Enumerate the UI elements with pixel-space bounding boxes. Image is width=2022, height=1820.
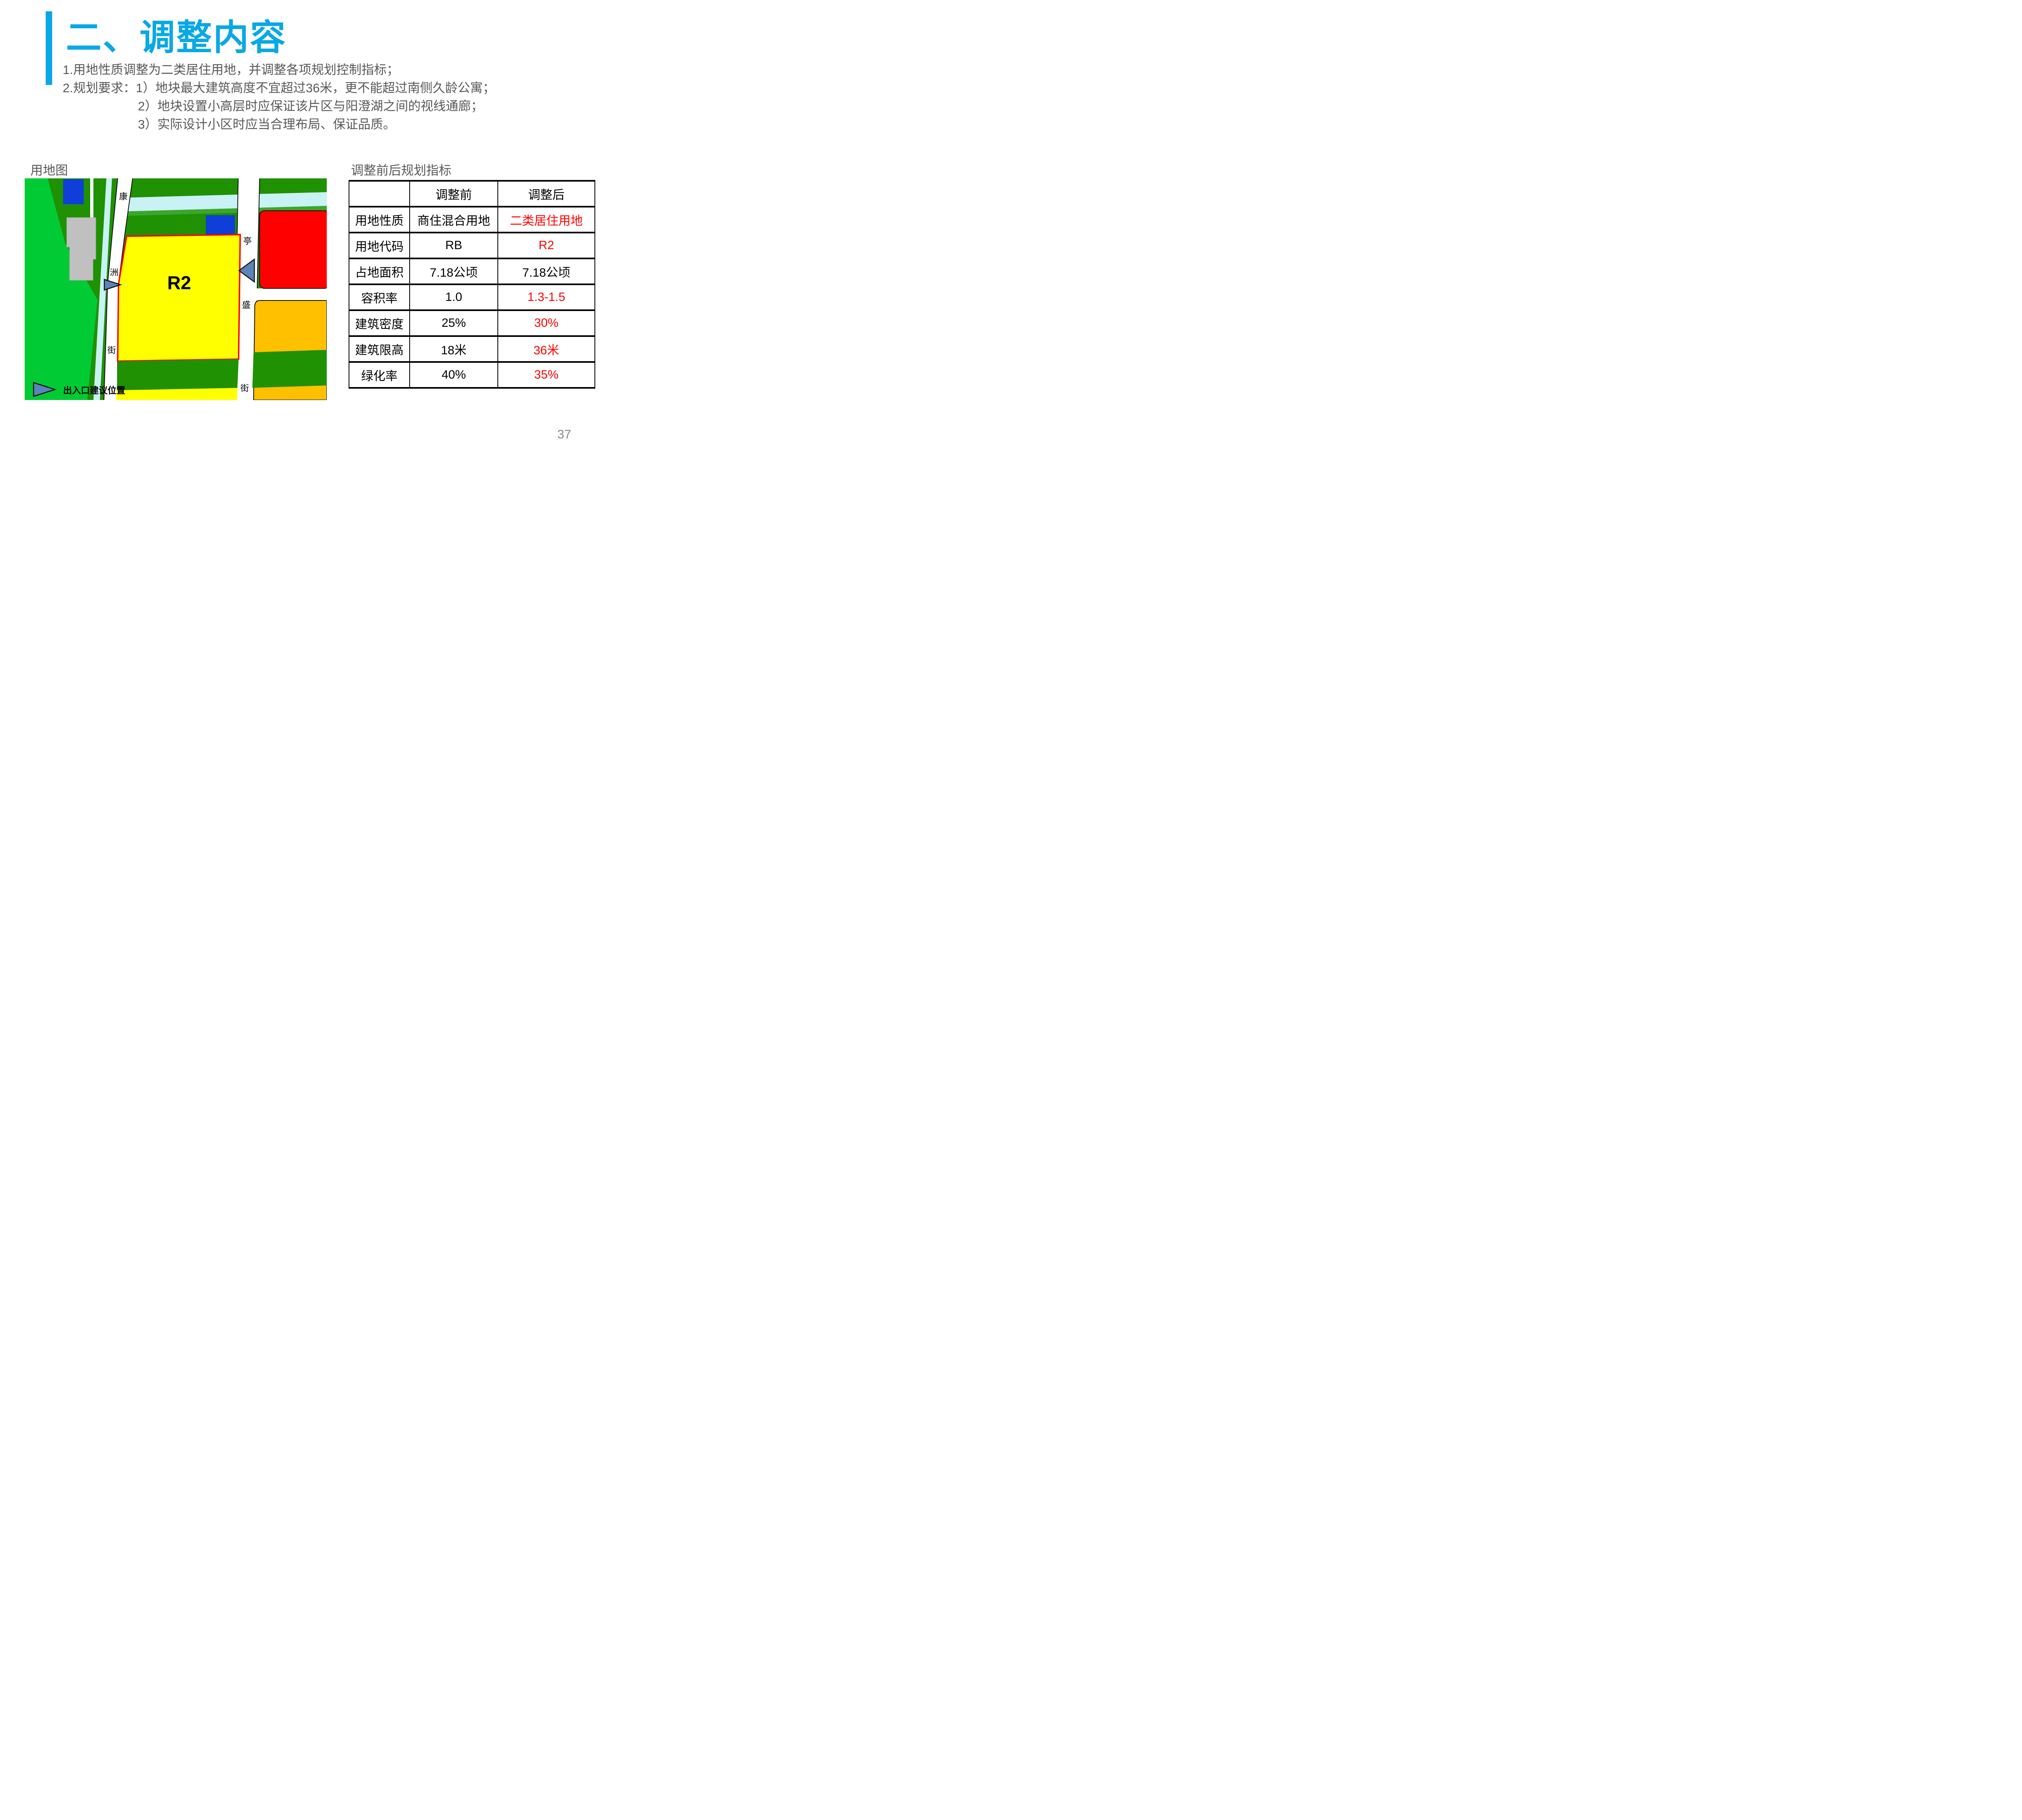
table-row: 建筑密度25%30%: [349, 310, 595, 336]
title-accent-bar: [46, 11, 52, 85]
map-r2-parcel: [118, 235, 240, 361]
map-green-band-left: [117, 359, 239, 390]
body-line: 2）地块设置小高层时应保证该片区与阳澄湖之间的视线通廊；: [63, 97, 495, 115]
body-line: 1.用地性质调整为二类居住用地，并调整各项规划控制指标；: [63, 61, 495, 79]
page-number: 37: [557, 427, 571, 442]
map-building: [67, 218, 96, 280]
street-label: 洲: [110, 268, 118, 277]
after-value: 35%: [498, 362, 595, 388]
header-cell-empty: [349, 181, 410, 207]
row-label: 用地代码: [349, 233, 410, 258]
spec-table-body: 用地性质商住混合用地二类居住用地用地代码RBR2占地面积7.18公顷7.18公顷…: [349, 207, 595, 388]
map-road-horizontal: [250, 288, 327, 301]
body-line: 2.规划要求：1）地块最大建筑高度不宜超过36米，更不能超过南侧久龄公寓；: [63, 79, 495, 97]
before-value: 40%: [410, 362, 498, 388]
street-label: 亭: [243, 237, 252, 246]
map-section-label: 用地图: [30, 160, 68, 178]
before-value: 18米: [410, 336, 498, 362]
slide: 二、调整内容 1.用地性质调整为二类居住用地，并调整各项规划控制指标； 2.规划…: [0, 0, 607, 455]
street-label: 街: [108, 346, 116, 355]
page-title: 二、调整内容: [66, 9, 287, 60]
row-label: 建筑密度: [349, 310, 410, 336]
header-cell-after: 调整后: [498, 181, 595, 207]
before-value: RB: [410, 233, 498, 258]
before-value: 1.0: [410, 284, 498, 310]
table-row: 用地代码RBR2: [349, 233, 595, 258]
after-value: 二类居住用地: [498, 207, 595, 233]
parcel-code-label: R2: [167, 272, 191, 293]
street-label: 盛: [242, 301, 251, 310]
after-value: 7.18公顷: [498, 258, 595, 284]
land-use-map: 康 洲 街 亭 盛 街 R2 出入口建议位置: [25, 178, 327, 400]
table-row: 占地面积7.18公顷7.18公顷: [349, 258, 595, 284]
map-blue-parcel-1: [63, 179, 84, 204]
body-text: 1.用地性质调整为二类居住用地，并调整各项规划控制指标； 2.规划要求：1）地块…: [63, 61, 495, 133]
table-section-label: 调整前后规划指标: [351, 160, 451, 178]
row-label: 建筑限高: [349, 336, 410, 362]
table-row: 用地性质商住混合用地二类居住用地: [349, 207, 595, 233]
before-value: 25%: [410, 310, 498, 336]
after-value: 1.3-1.5: [498, 284, 595, 310]
table-row: 绿化率40%35%: [349, 362, 595, 388]
row-label: 占地面积: [349, 258, 410, 284]
body-line: 3）实际设计小区时应当合理布局、保证品质。: [63, 115, 495, 133]
row-label: 用地性质: [349, 207, 410, 233]
map-green-band-right: [252, 350, 327, 388]
table-row: 容积率1.01.3-1.5: [349, 284, 595, 310]
after-value: 30%: [498, 310, 595, 336]
street-label: 康: [119, 192, 128, 201]
table-row: 建筑限高18米36米: [349, 336, 595, 362]
map-red-parcel: [260, 211, 327, 288]
table-header-row: 调整前 调整后: [349, 181, 595, 207]
legend-label: 出入口建议位置: [63, 385, 125, 396]
spec-table: 调整前 调整后 用地性质商住混合用地二类居住用地用地代码RBR2占地面积7.18…: [349, 180, 595, 389]
after-value: R2: [498, 233, 595, 258]
row-label: 容积率: [349, 284, 410, 310]
before-value: 商住混合用地: [410, 207, 498, 233]
header-cell-before: 调整前: [410, 181, 498, 207]
before-value: 7.18公顷: [410, 258, 498, 284]
after-value: 36米: [498, 336, 595, 362]
row-label: 绿化率: [349, 362, 410, 388]
street-label: 街: [241, 384, 249, 393]
map-footpath: [90, 178, 93, 218]
